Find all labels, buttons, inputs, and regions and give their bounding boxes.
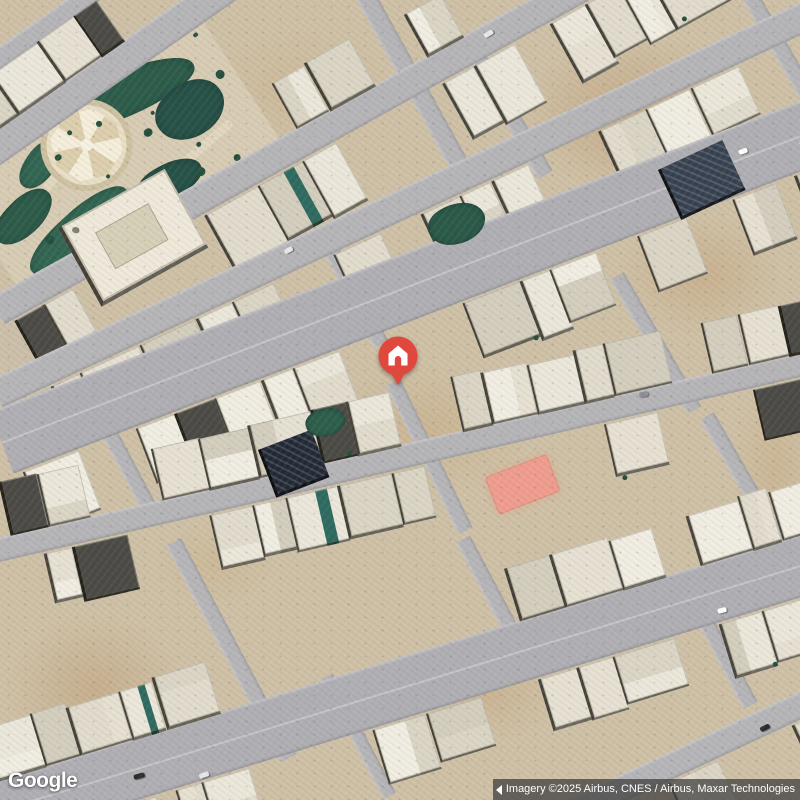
tree <box>621 475 627 481</box>
building <box>603 413 669 478</box>
attribution-text: Imagery ©2025 Airbus, CNES / Airbus, Max… <box>506 779 795 800</box>
map-canvas <box>0 0 800 800</box>
mosque-courtyard <box>95 203 169 269</box>
mosque-minaret <box>71 226 79 234</box>
satellite-map[interactable]: Google Imagery ©2025 Airbus, CNES / Airb… <box>0 0 800 800</box>
home-marker-icon <box>376 334 420 388</box>
home-marker[interactable] <box>376 334 420 388</box>
attribution-bar: Imagery ©2025 Airbus, CNES / Airbus, Max… <box>493 779 800 800</box>
building <box>753 377 800 441</box>
tree <box>214 69 226 81</box>
tree <box>193 32 199 38</box>
tree <box>142 126 154 138</box>
attribution-collapse-icon[interactable] <box>496 785 502 795</box>
google-watermark[interactable]: Google <box>8 769 77 793</box>
